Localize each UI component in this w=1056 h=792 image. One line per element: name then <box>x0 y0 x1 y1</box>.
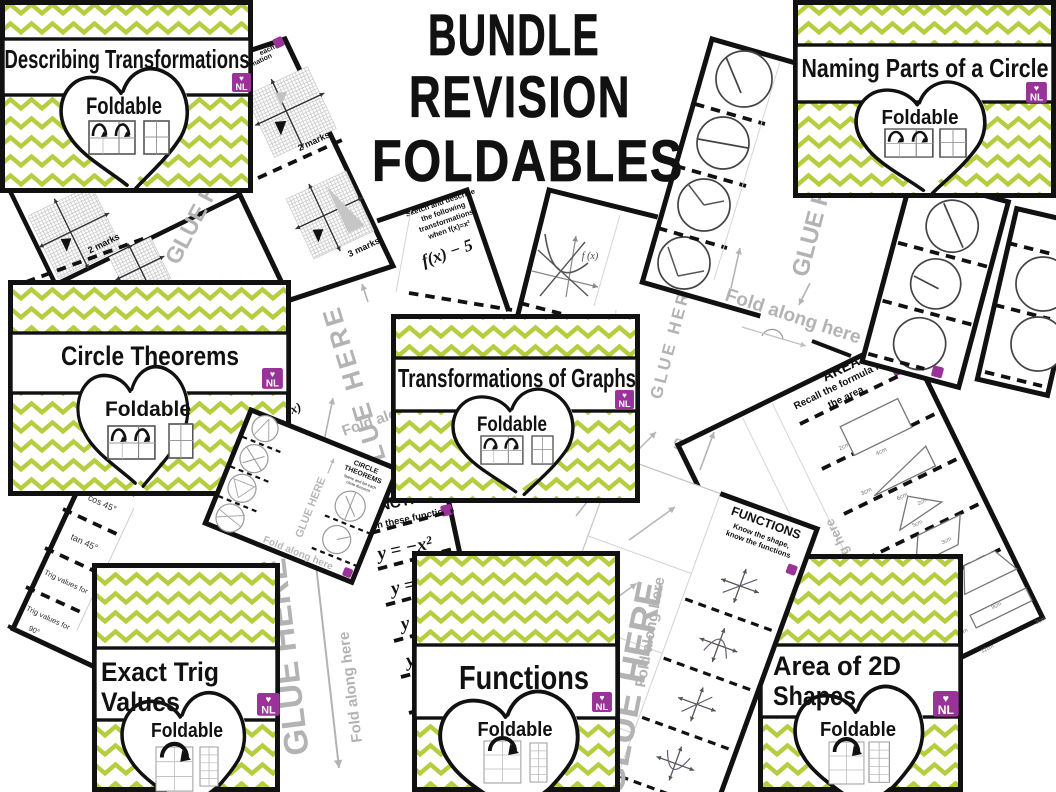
svg-text:Describing Transformations: Describing Transformations <box>5 44 250 74</box>
svg-text:REVISION: REVISION <box>409 65 631 130</box>
svg-text:Area of 2D: Area of 2D <box>773 651 901 681</box>
svg-text:Foldable: Foldable <box>86 93 162 120</box>
svg-text:Values: Values <box>101 687 180 717</box>
svg-text:Functions: Functions <box>459 659 589 696</box>
svg-text:Foldable: Foldable <box>882 107 959 129</box>
svg-text:f (x): f (x) <box>582 251 599 262</box>
svg-text:Exact Trig: Exact Trig <box>101 657 219 687</box>
svg-text:Circle Theorems: Circle Theorems <box>61 341 239 371</box>
svg-text:Foldable: Foldable <box>105 398 191 421</box>
svg-text:Shapes: Shapes <box>773 681 856 711</box>
svg-text:FOLDABLES: FOLDABLES <box>372 129 684 194</box>
svg-text:Foldable: Foldable <box>820 719 896 741</box>
svg-text:Transformations of Graphs: Transformations of Graphs <box>398 363 636 393</box>
svg-text:Foldable: Foldable <box>478 719 553 741</box>
svg-text:BUNDLE: BUNDLE <box>428 3 600 68</box>
svg-text:Foldable: Foldable <box>477 413 547 436</box>
svg-text:Naming Parts of a Circle: Naming Parts of a Circle <box>802 53 1049 83</box>
svg-text:Foldable: Foldable <box>151 720 223 742</box>
